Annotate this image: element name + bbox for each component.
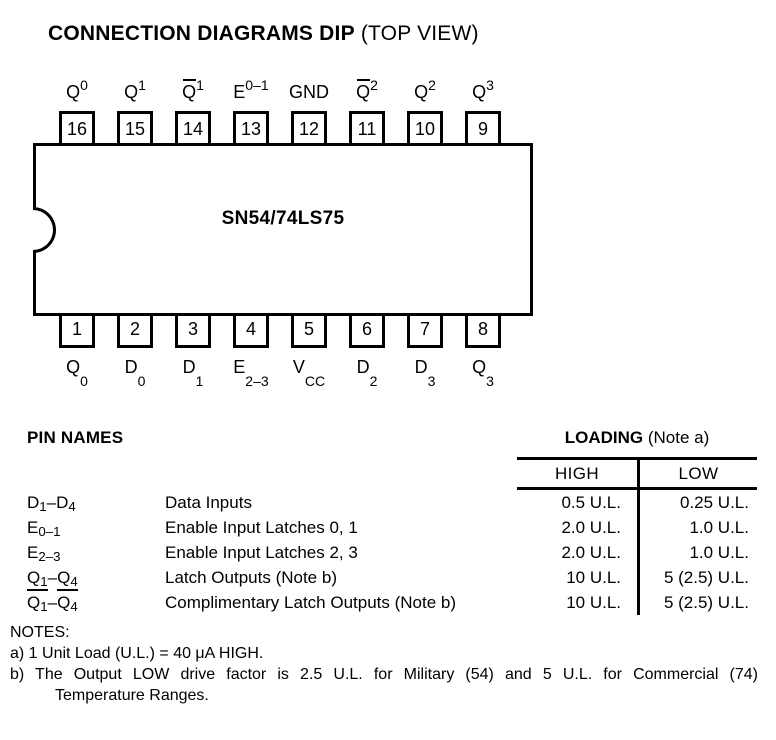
- pin-name-cell: E2–3: [27, 540, 165, 565]
- pin-5-label: VCC: [293, 348, 325, 378]
- pin-2-number: 2: [117, 316, 153, 348]
- low-value-cell: 5 (2.5) U.L.: [637, 590, 757, 615]
- pin-10-label: Q2: [414, 82, 436, 111]
- pin-15-number: 15: [117, 111, 153, 143]
- pin-4: 4 E2–3: [222, 316, 280, 378]
- pin-7: 7 D3: [396, 316, 454, 378]
- high-column-header: HIGH: [517, 457, 637, 490]
- datasheet-page: CONNECTION DIAGRAMS DIP (TOP VIEW) Q0 16…: [0, 0, 776, 740]
- chip-body: SN54/74LS75: [33, 143, 533, 316]
- pin-9-label: Q3: [472, 82, 494, 111]
- pin-8-number: 8: [465, 316, 501, 348]
- description-cell: Data Inputs: [165, 490, 517, 515]
- pin-3-number: 3: [175, 316, 211, 348]
- title-main: CONNECTION DIAGRAMS DIP: [48, 22, 355, 45]
- low-value-cell: 1.0 U.L.: [637, 515, 757, 540]
- pin-6-label: D2: [357, 348, 378, 378]
- pin-7-number: 7: [407, 316, 443, 348]
- description-cell: Complimentary Latch Outputs (Note b): [165, 590, 517, 615]
- pin-3: 3 D1: [164, 316, 222, 378]
- pin-16-number: 16: [59, 111, 95, 143]
- pin-12: GND 12: [280, 82, 338, 143]
- high-value-cell: 10 U.L.: [517, 590, 637, 615]
- pin-7-label: D3: [415, 348, 436, 378]
- notes-heading: NOTES:: [10, 622, 758, 643]
- pin-4-label: E2–3: [233, 348, 268, 378]
- pin-4-number: 4: [233, 316, 269, 348]
- bottom-pin-row: 1 Q0 2 D0 3 D1 4 E2–3 5 VCC 6 D2: [33, 316, 539, 382]
- note-b-line1: b) The Output LOW drive factor is 2.5 U.…: [10, 664, 758, 685]
- pin-name-cell: D1–D4: [27, 490, 165, 515]
- pin-14-label: Q1: [182, 82, 204, 111]
- pin-12-number: 12: [291, 111, 327, 143]
- title-subtitle: (TOP VIEW): [361, 22, 479, 45]
- pin-16: Q0 16: [48, 82, 106, 143]
- pin-13: E0–1 13: [222, 82, 280, 143]
- description-cell: Enable Input Latches 2, 3: [165, 540, 517, 565]
- pin-9-number: 9: [465, 111, 501, 143]
- loading-heading-bold: LOADING: [565, 428, 643, 447]
- pin-name-cell: E0–1: [27, 515, 165, 540]
- pin-3-label: D1: [183, 348, 204, 378]
- low-value-cell: 5 (2.5) U.L.: [637, 565, 757, 590]
- description-cell: Latch Outputs (Note b): [165, 565, 517, 590]
- pin-names-heading: PIN NAMES: [27, 428, 517, 457]
- pin-5: 5 VCC: [280, 316, 338, 378]
- description-cell: Enable Input Latches 0, 1: [165, 515, 517, 540]
- loading-heading: LOADING (Note a): [517, 428, 757, 457]
- pin-12-label: GND: [289, 82, 329, 111]
- pin-11: Q2 11: [338, 82, 396, 143]
- low-value-cell: 1.0 U.L.: [637, 540, 757, 565]
- overline-bar: Q: [356, 82, 370, 103]
- pin-names-loading-table: PIN NAMES LOADING (Note a) HIGH LOW D1–D…: [27, 428, 757, 615]
- pin-10-number: 10: [407, 111, 443, 143]
- pin-6-number: 6: [349, 316, 385, 348]
- high-value-cell: 0.5 U.L.: [517, 490, 637, 515]
- pin-name-cell: Q1–Q4: [27, 590, 165, 615]
- pin-2-label: D0: [125, 348, 146, 378]
- pin-16-label: Q0: [66, 82, 88, 111]
- page-title: CONNECTION DIAGRAMS DIP (TOP VIEW): [48, 22, 776, 46]
- high-value-cell: 2.0 U.L.: [517, 540, 637, 565]
- note-b-line2: Temperature Ranges.: [10, 685, 758, 706]
- pin-2: 2 D0: [106, 316, 164, 378]
- pin-name-cell: Q1–Q4: [27, 565, 165, 590]
- loading-heading-note: (Note a): [643, 428, 709, 447]
- overline-bar: Q: [182, 82, 196, 103]
- pin-1-number: 1: [59, 316, 95, 348]
- pin-11-number: 11: [349, 111, 385, 143]
- pin-9: Q3 9: [454, 82, 512, 143]
- low-value-cell: 0.25 U.L.: [637, 490, 757, 515]
- notes-section: NOTES: a) 1 Unit Load (U.L.) = 40 μA HIG…: [10, 622, 758, 706]
- pin-14: Q1 14: [164, 82, 222, 143]
- chip-part-number: SN54/74LS75: [36, 208, 530, 230]
- dip-connection-diagram: Q0 16 Q1 15 Q1 14 E0–1 13 GND 12 Q2 11: [33, 81, 539, 382]
- pin-5-number: 5: [291, 316, 327, 348]
- top-pin-row: Q0 16 Q1 15 Q1 14 E0–1 13 GND 12 Q2 11: [33, 81, 539, 143]
- pin-1: 1 Q0: [48, 316, 106, 378]
- high-value-cell: 2.0 U.L.: [517, 515, 637, 540]
- pin-13-label: E0–1: [233, 82, 268, 111]
- pin-14-number: 14: [175, 111, 211, 143]
- pin-11-label: Q2: [356, 82, 378, 111]
- low-column-header: LOW: [637, 457, 757, 490]
- pin-13-number: 13: [233, 111, 269, 143]
- pin-10: Q2 10: [396, 82, 454, 143]
- pin-8: 8 Q3: [454, 316, 512, 378]
- note-a: a) 1 Unit Load (U.L.) = 40 μA HIGH.: [10, 643, 758, 664]
- pin-6: 6 D2: [338, 316, 396, 378]
- pin-15-label: Q1: [124, 82, 146, 111]
- pin-15: Q1 15: [106, 82, 164, 143]
- pin-1-label: Q0: [66, 348, 88, 378]
- high-value-cell: 10 U.L.: [517, 565, 637, 590]
- pin-8-label: Q3: [472, 348, 494, 378]
